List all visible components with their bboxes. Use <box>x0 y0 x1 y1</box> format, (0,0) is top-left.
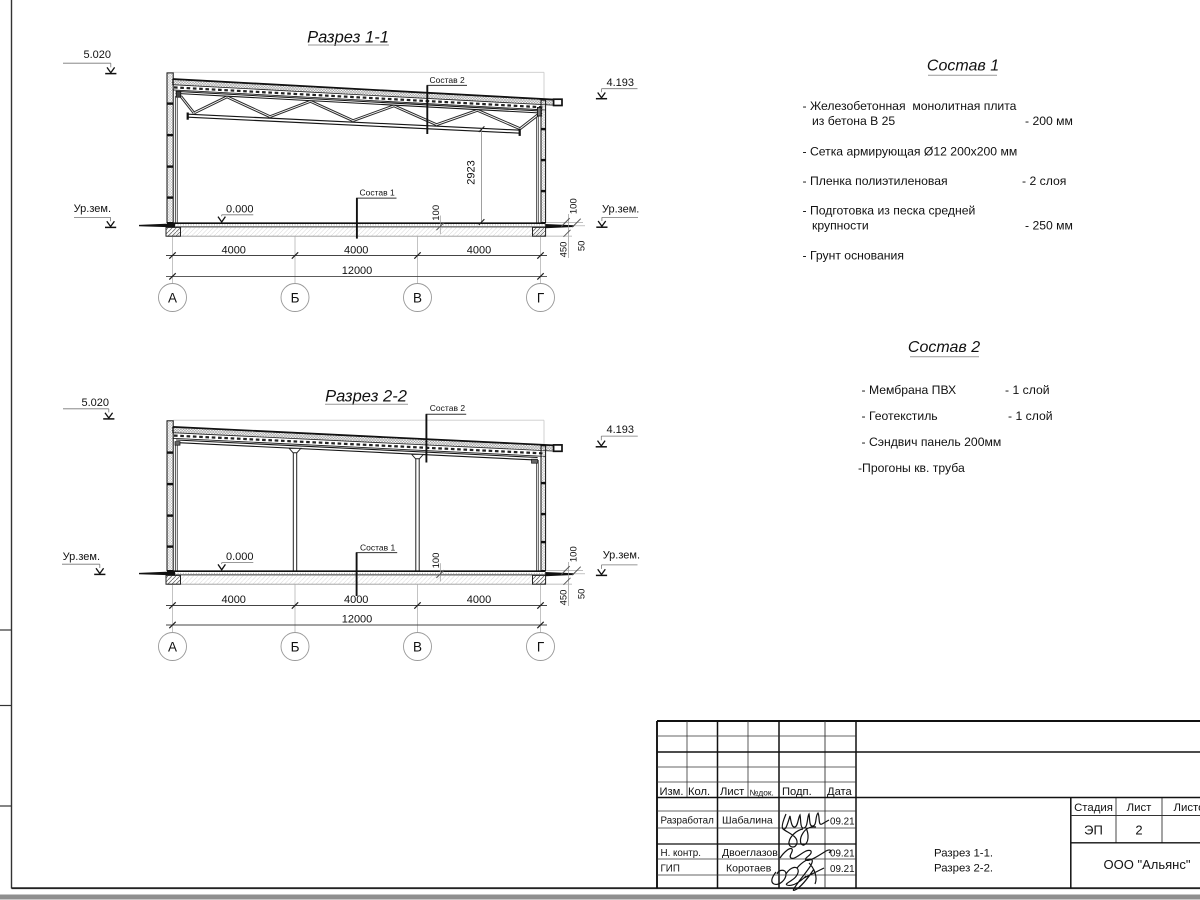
svg-text:В: В <box>413 290 422 305</box>
svg-text:Состав 1: Состав 1 <box>360 542 396 552</box>
svg-text:Состав 1: Состав 1 <box>927 58 999 75</box>
svg-text:2923: 2923 <box>465 160 477 184</box>
svg-text:- Сэндвич панель 200мм: - Сэндвич панель 200мм <box>862 435 1002 449</box>
svg-text:№док.: №док. <box>750 787 774 797</box>
svg-text:ГИП: ГИП <box>661 863 680 874</box>
svg-text:Б: Б <box>291 639 300 654</box>
svg-text:Кол.: Кол. <box>688 786 710 798</box>
svg-text:09.21: 09.21 <box>830 849 855 860</box>
svg-text:50: 50 <box>576 589 587 600</box>
svg-text:Разрез 1-1: Разрез 1-1 <box>307 29 389 47</box>
svg-text:- 200 мм: - 200 мм <box>1025 114 1073 128</box>
svg-text:4.193: 4.193 <box>606 424 634 436</box>
svg-text:А: А <box>168 639 177 654</box>
svg-text:Шабалина: Шабалина <box>722 815 773 827</box>
svg-text:Дата: Дата <box>827 786 853 798</box>
svg-text:А: А <box>168 290 177 305</box>
svg-text:Н. контр.: Н. контр. <box>661 848 701 859</box>
svg-text:Состав 2: Состав 2 <box>908 339 980 356</box>
svg-text:крупности: крупности <box>812 219 869 233</box>
svg-text:Листов: Листов <box>1173 802 1200 814</box>
svg-text:09.21: 09.21 <box>830 864 855 875</box>
svg-text:из бетона В 25: из бетона В 25 <box>812 114 895 128</box>
svg-text:Б: Б <box>291 290 300 305</box>
svg-text:- Пленка полиэтиленовая: - Пленка полиэтиленовая <box>803 174 948 188</box>
svg-text:2: 2 <box>1135 822 1142 837</box>
svg-text:0.000: 0.000 <box>226 551 254 563</box>
svg-text:4000: 4000 <box>467 244 491 256</box>
svg-text:Коротаев: Коротаев <box>726 862 772 874</box>
svg-text:-Прогоны кв. труба: -Прогоны кв. труба <box>858 461 965 475</box>
svg-text:Состав 2: Состав 2 <box>430 75 466 85</box>
svg-text:Разрез 2-2.: Разрез 2-2. <box>934 863 993 875</box>
svg-text:Г: Г <box>537 639 545 654</box>
svg-text:- 1 слой: - 1 слой <box>1005 383 1050 397</box>
svg-text:Ур.зем.: Ур.зем. <box>74 203 111 215</box>
svg-text:4000: 4000 <box>344 244 368 256</box>
svg-text:- Мембрана ПВХ: - Мембрана ПВХ <box>862 383 957 397</box>
svg-text:0.000: 0.000 <box>226 203 254 215</box>
svg-text:450: 450 <box>559 242 570 258</box>
svg-text:4000: 4000 <box>221 594 245 606</box>
svg-text:Состав 2: Состав 2 <box>430 403 466 413</box>
svg-text:- 1 слой: - 1 слой <box>1008 409 1053 423</box>
svg-text:Ур.зем.: Ур.зем. <box>63 551 100 563</box>
svg-text:- 2 слоя: - 2 слоя <box>1022 174 1066 188</box>
svg-text:09.21: 09.21 <box>830 817 855 828</box>
svg-text:Лист: Лист <box>1127 802 1153 814</box>
svg-text:- Подготовка из песка средней: - Подготовка из песка средней <box>803 203 976 217</box>
svg-text:4000: 4000 <box>467 594 491 606</box>
svg-text:4000: 4000 <box>344 594 368 606</box>
svg-text:50: 50 <box>576 241 587 252</box>
svg-text:Стадия: Стадия <box>1074 802 1113 814</box>
svg-text:Лист: Лист <box>720 786 744 798</box>
svg-text:Изм.: Изм. <box>660 786 684 798</box>
svg-text:Разработал: Разработал <box>661 816 715 827</box>
svg-text:- Железобетонная монолитная п: - Железобетонная монолитная плита <box>803 99 1017 113</box>
svg-text:- Сетка армирующая Ø12 200х200: - Сетка армирующая Ø12 200х200 мм <box>803 144 1018 158</box>
svg-text:12000: 12000 <box>342 265 373 277</box>
svg-text:Двоеглазов: Двоеглазов <box>722 847 778 859</box>
svg-text:Состав 1: Состав 1 <box>360 188 396 198</box>
svg-text:Г: Г <box>537 290 545 305</box>
svg-text:5.020: 5.020 <box>81 397 109 409</box>
svg-text:100: 100 <box>569 198 580 214</box>
svg-text:5.020: 5.020 <box>83 49 111 61</box>
svg-text:4000: 4000 <box>221 244 245 256</box>
svg-text:12000: 12000 <box>342 614 373 626</box>
svg-text:ЭП: ЭП <box>1084 822 1103 837</box>
svg-text:ООО "Альянс": ООО "Альянс" <box>1104 857 1191 872</box>
svg-text:4.193: 4.193 <box>606 77 634 89</box>
svg-text:450: 450 <box>559 590 570 606</box>
svg-text:100: 100 <box>569 546 580 562</box>
svg-text:- 250 мм: - 250 мм <box>1025 219 1073 233</box>
svg-text:Подп.: Подп. <box>782 786 812 798</box>
svg-text:Разрез 2-2: Разрез 2-2 <box>325 388 407 406</box>
svg-text:Разрез 1-1.: Разрез 1-1. <box>934 847 993 859</box>
svg-text:Ур.зем.: Ур.зем. <box>602 203 639 215</box>
svg-text:- Грунт основания: - Грунт основания <box>803 248 904 262</box>
svg-text:В: В <box>413 639 422 654</box>
svg-text:- Геотекстиль: - Геотекстиль <box>862 409 938 423</box>
svg-text:Ур.зем.: Ур.зем. <box>603 550 640 562</box>
